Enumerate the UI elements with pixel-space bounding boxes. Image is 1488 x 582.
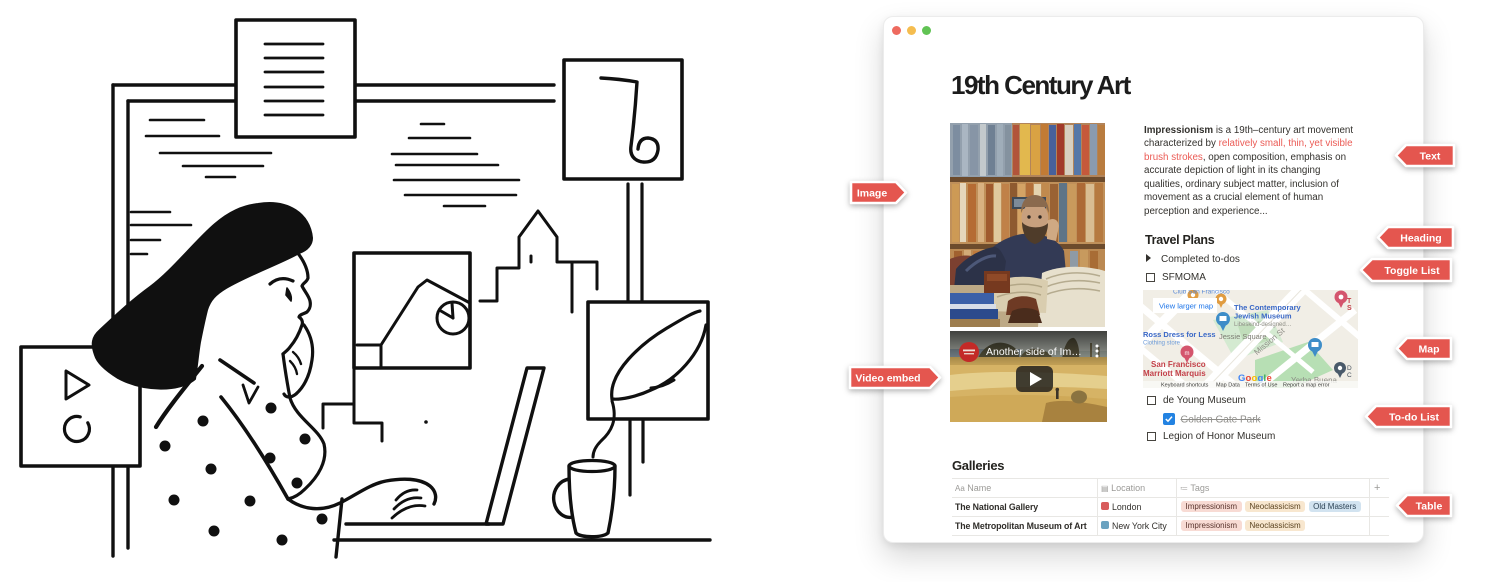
svg-text:Report a map error: Report a map error	[1283, 383, 1330, 389]
svg-text:Image: Image	[857, 188, 888, 200]
svg-text:Table: Table	[1416, 501, 1443, 513]
svg-text:Marriott Marquis: Marriott Marquis	[1143, 369, 1206, 378]
svg-text:Video embed: Video embed	[855, 373, 920, 385]
svg-text:Another side of Im…: Another side of Im…	[986, 346, 1082, 358]
svg-text:Toggle List: Toggle List	[1384, 265, 1440, 277]
svg-text:Jessie Square: Jessie Square	[1219, 332, 1267, 341]
svg-text:S: S	[1347, 305, 1352, 312]
svg-text:Terms of Use: Terms of Use	[1245, 383, 1277, 389]
svg-text:Keyboard shortcuts: Keyboard shortcuts	[1161, 383, 1209, 389]
svg-text:Clothing store: Clothing store	[1143, 341, 1181, 347]
svg-text:T: T	[1347, 298, 1352, 305]
svg-text:C: C	[1347, 372, 1352, 379]
svg-text:Libeskind-designed…: Libeskind-designed…	[1234, 322, 1292, 328]
svg-text:D: D	[1347, 365, 1352, 372]
svg-text:To-do List: To-do List	[1389, 412, 1439, 424]
svg-text:Map: Map	[1419, 344, 1440, 356]
svg-text:View larger map: View larger map	[1159, 302, 1213, 311]
svg-text:San Francisco: San Francisco	[1151, 360, 1206, 369]
svg-text:Jewish Museum: Jewish Museum	[1234, 312, 1292, 321]
svg-text:Text: Text	[1420, 151, 1441, 163]
svg-text:Map Data: Map Data	[1216, 383, 1241, 389]
svg-text:Ross Dress for Less: Ross Dress for Less	[1143, 330, 1216, 339]
svg-text:m: m	[1185, 351, 1190, 357]
svg-text:Heading: Heading	[1400, 233, 1441, 245]
svg-text:Club San Francisco: Club San Francisco	[1173, 290, 1230, 296]
